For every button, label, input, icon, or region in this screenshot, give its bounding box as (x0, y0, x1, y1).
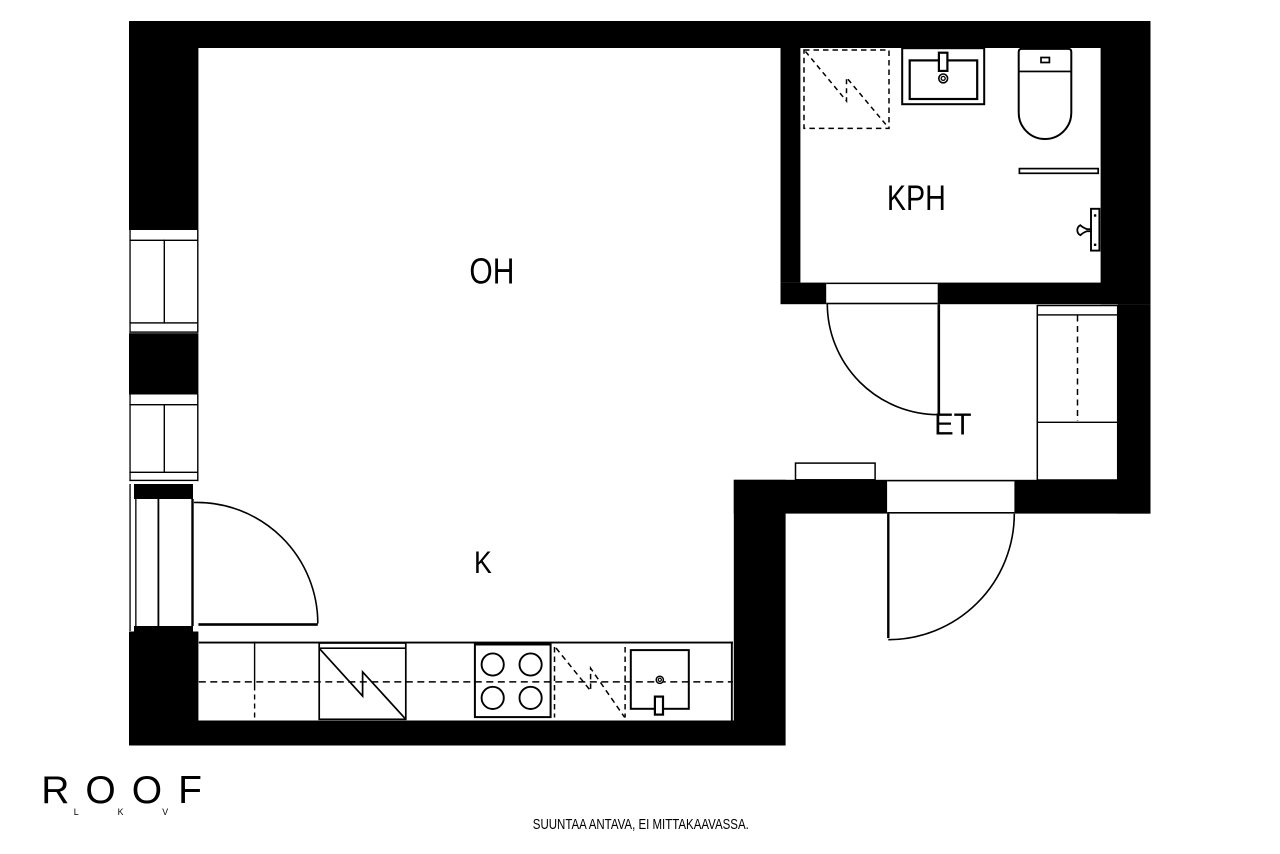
svg-text:K: K (474, 544, 492, 580)
svg-text:K: K (118, 807, 124, 817)
svg-text:ET: ET (934, 406, 972, 441)
svg-text:V: V (162, 807, 168, 817)
svg-text:L: L (74, 807, 79, 817)
svg-text:OH: OH (469, 250, 514, 291)
svg-text:SUUNTAA ANTAVA, EI MITTAKAAVAS: SUUNTAA ANTAVA, EI MITTAKAAVASSA. (533, 817, 749, 833)
svg-text:KPH: KPH (887, 178, 946, 218)
